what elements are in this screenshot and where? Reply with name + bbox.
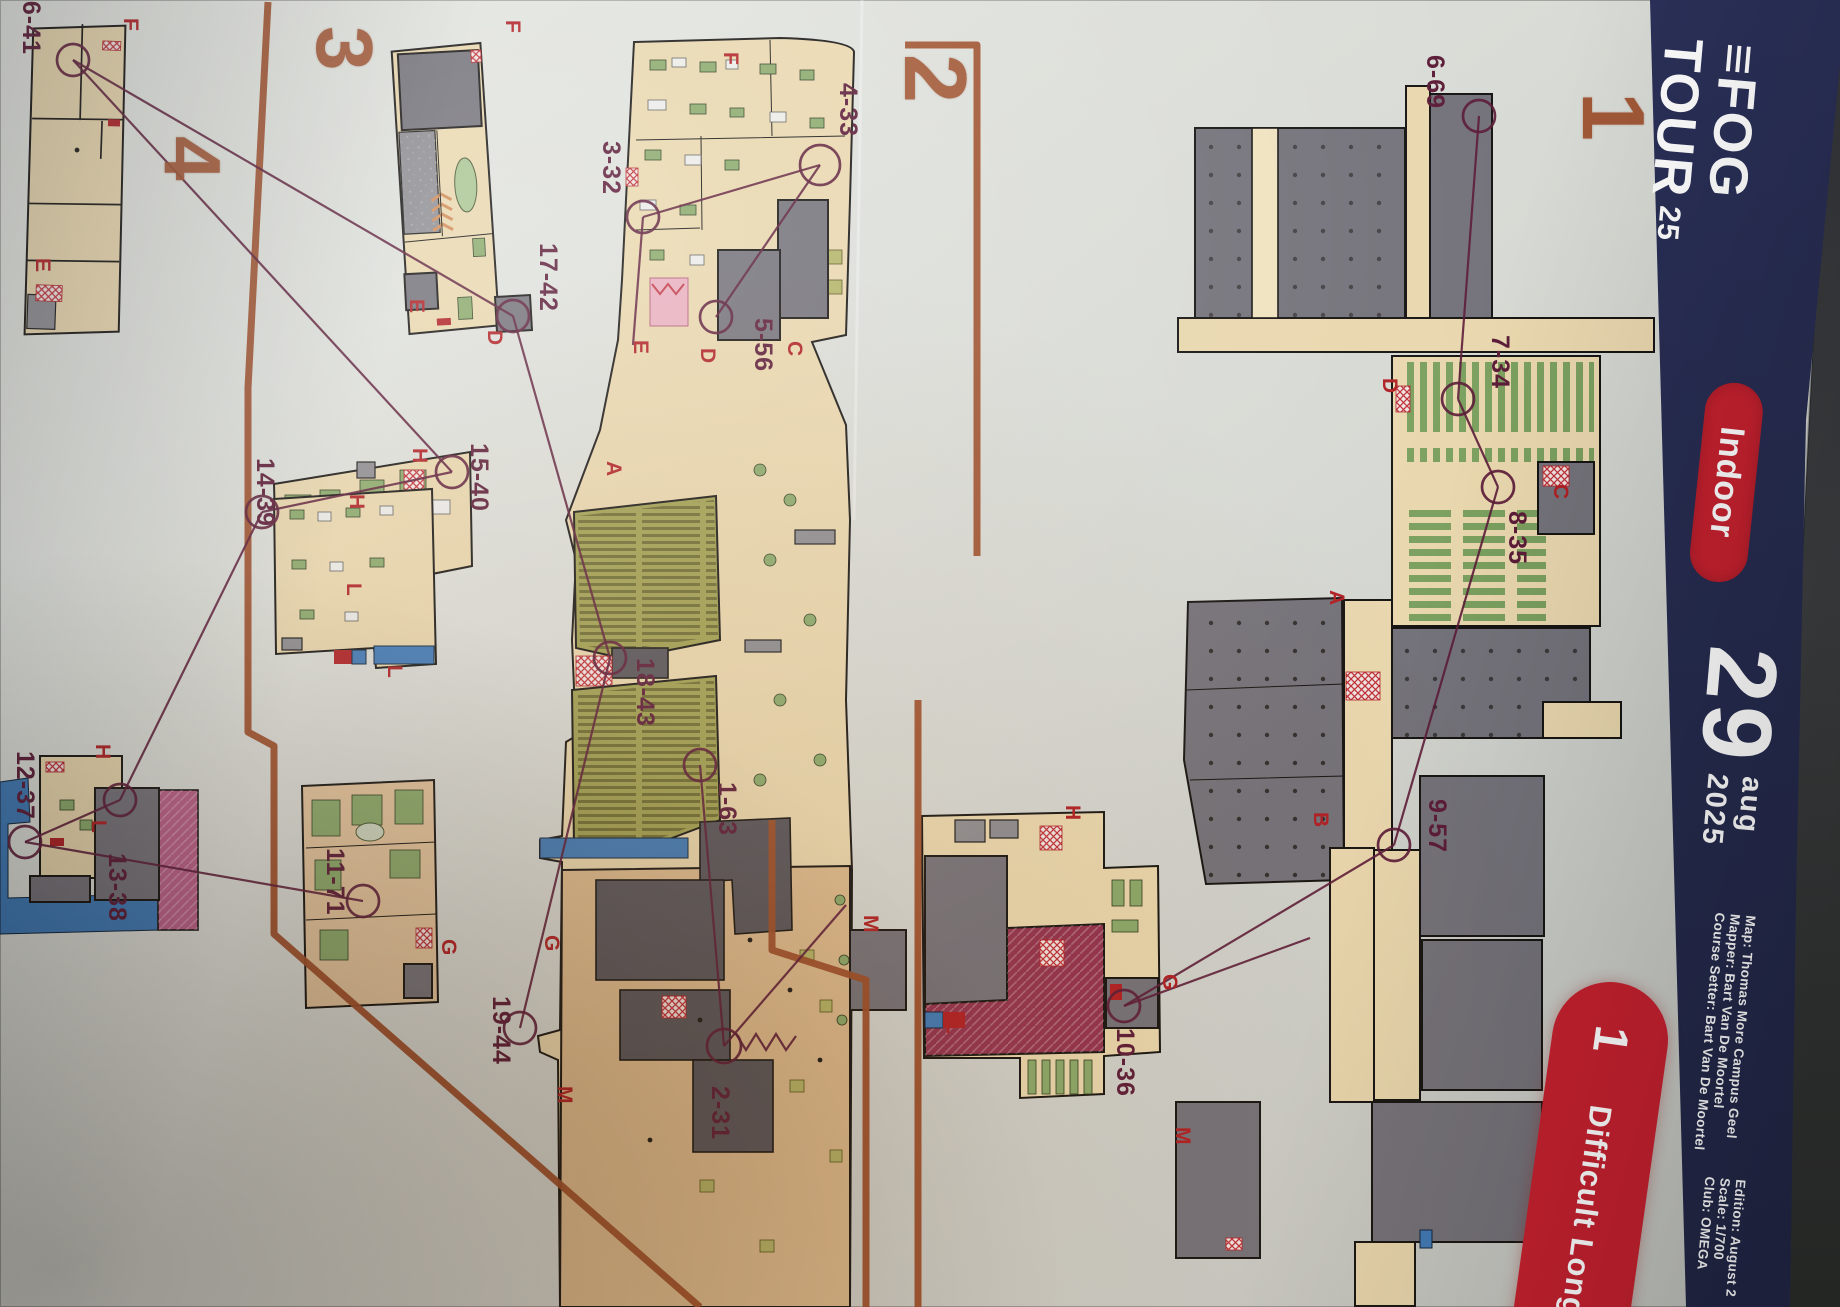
event-date-day: 29 xyxy=(1678,642,1801,768)
logo-year: 25 xyxy=(1650,204,1686,242)
map-section-3 xyxy=(391,43,499,334)
event-date-month: aug xyxy=(1728,775,1769,850)
course-badge-number: 1 xyxy=(1581,1022,1639,1056)
event-date-month-year: aug 2025 xyxy=(1694,772,1770,850)
map-section-11-upper xyxy=(274,489,436,668)
map-section-4 xyxy=(23,22,130,337)
event-logo: ≡FOG TOUR25 xyxy=(1638,36,1768,248)
photo-of-orienteering-map: 12341-632-313-324-335-566-697-348-359-57… xyxy=(0,0,1840,1307)
event-date-year: 2025 xyxy=(1694,772,1735,847)
indoor-badge-label: Indoor xyxy=(1701,425,1751,540)
logo-bars-icon: ≡ xyxy=(1707,41,1770,80)
course-badge-name: Difficult Long xyxy=(1553,1103,1618,1307)
